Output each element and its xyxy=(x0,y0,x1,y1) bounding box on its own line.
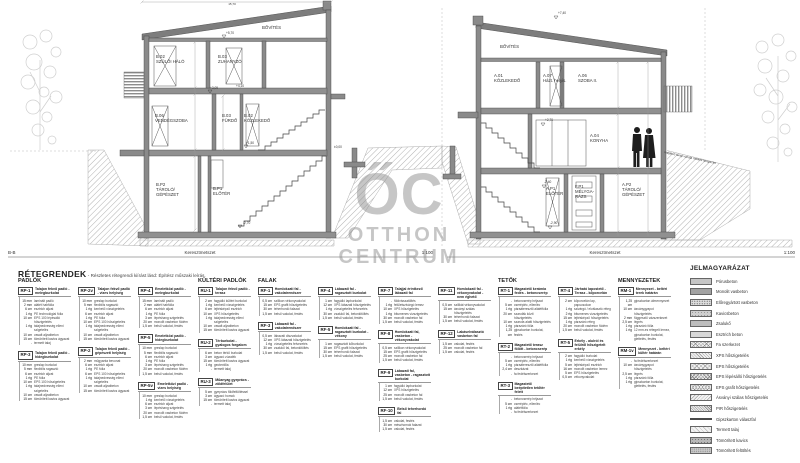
layer-thickness: 1,5 cm xyxy=(382,358,394,362)
layer-code-chip: RM-1v xyxy=(618,347,636,355)
material-swatch xyxy=(690,447,712,454)
layer-material: belső vakolat, festés xyxy=(454,319,491,323)
partition-wall xyxy=(600,174,604,232)
layer-row: 1,5 cmbelső vakolat, festés xyxy=(142,324,191,328)
room-name: Házt. helyis. xyxy=(543,78,566,83)
exterior-stair xyxy=(124,72,144,98)
slab xyxy=(149,150,327,156)
layer-row: 1,5 cmbelső vakolat, festés xyxy=(382,358,431,362)
legend-item-label: Fa szerkezet xyxy=(716,342,740,347)
layer-rows: 15 mmlaminált padló2 mmalátét habfólia6 … xyxy=(19,297,71,345)
caption-left: B-B Keresztmetszet 1:100 xyxy=(8,250,433,257)
layer-group-columns: RF-1Homlokzati fal - vakolatrendszer0,5 … xyxy=(258,287,491,438)
layer-thickness: 1 rtg xyxy=(22,324,34,332)
room-name: KÖZLEKEDŐ xyxy=(244,118,271,123)
layer-spec-block-header: RP-5vEmeletközi padló - vizes helyiség xyxy=(138,382,191,392)
layer-spec-block: RF-4Lábazati fal - ragasztott burkolat1 … xyxy=(318,287,371,320)
layer-block-title: Emeletközi padló - hidegburkolat xyxy=(155,334,191,342)
layer-rows: 1,5 cmvakolat, festés25 cmmonolit vasbet… xyxy=(439,340,491,354)
layer-code-chip: RP-5 xyxy=(138,334,153,342)
layer-rows: 1 cmfagyálló lapburkolat12 cmXPS lábazat… xyxy=(319,297,371,320)
layer-rows: 1 cmragasztott kőburkolat15 cmEPS grafit… xyxy=(319,340,371,358)
layer-group-heading: MENNYEZETEK xyxy=(618,278,660,284)
layer-thickness: 1,5 cm xyxy=(142,324,154,328)
elevation-label: ±0,00 xyxy=(334,145,342,149)
slab xyxy=(149,38,327,42)
layer-spec-block: RM-1Mennyezet - beltéri terek határán1,2… xyxy=(618,287,671,341)
layer-rows: 2 cmfagyálló burkolat1 rtgkenhető vízszi… xyxy=(559,353,611,380)
layer-material: fa fedélszerkezet xyxy=(514,372,551,376)
layer-spec-block-header: RM-1vMennyezet - beltéri kültér határán xyxy=(618,347,671,357)
layer-thickness: 1 rtg xyxy=(82,324,94,332)
layer-spec-block-header: RF-10Belső teherhordó fal xyxy=(378,407,431,417)
layer-row: -fa fedélszerkezet xyxy=(502,410,551,414)
layer-rows: 0,5 cmszilikon vékonyvakolat15 cmEPS gra… xyxy=(379,344,431,362)
material-swatch xyxy=(690,299,712,306)
material-swatch xyxy=(690,352,712,359)
layer-row: -termett talaj xyxy=(202,367,251,371)
layer-row: 1,5 cmbelső vakolat, festés xyxy=(322,316,371,320)
layer-rows: 1,5 cmvakolat, festés30 cmmészhomok fala… xyxy=(379,417,431,431)
room-name: RÁZS xyxy=(575,194,587,199)
elevation-label: +3,09 xyxy=(210,86,218,90)
layer-thickness: 10 cm xyxy=(622,307,634,315)
layer-row: 1,5 cmvakolat, festés xyxy=(382,427,431,431)
slab xyxy=(481,108,661,114)
layer-spec-column: RF-11Homlokzati fal - vékonyvakolat - ne… xyxy=(438,287,491,438)
layer-row: 1 rtgtalajnedvesség elleni szigetelés xyxy=(22,384,71,392)
material-swatch xyxy=(690,426,712,433)
layer-code-chip: RP-4 xyxy=(138,287,153,295)
legend-item-label: Ásványi szálas hőszigetelés xyxy=(716,395,768,400)
layer-spec-block-header: RP-3Talajon fekvő padló - hidegburkolat xyxy=(18,351,71,361)
slab xyxy=(149,88,327,94)
layer-material: termett talaj xyxy=(214,367,251,371)
layer-rows: 15 mmlaminált padló2 mmalátét habfólia6 … xyxy=(139,297,191,328)
layer-row: 15 cmásványi szálas hőszigetelés xyxy=(442,307,491,315)
layer-rows: 0,5 cmszilikon vékonyvakolat15 cmEPS gra… xyxy=(259,297,311,315)
layer-thickness: 1 rtg xyxy=(82,376,94,384)
layer-code-chip: RF-1 xyxy=(258,287,273,295)
partition-wall xyxy=(536,62,540,108)
layer-spec-column: RM-1Mennyezet - beltéri terek határán1,2… xyxy=(618,287,671,395)
layer-spec-block: RT-1Magastető kerámia fedés - betoncseré… xyxy=(498,287,551,337)
layer-spec-block: RF-7Talajjal érintkező lábazati fal-föld… xyxy=(378,287,431,324)
layer-spec-block-header: RF-8Homlokzati fal, vasbeton - vékonyvak… xyxy=(378,330,431,344)
layer-block-title: Talajon fekvő padló - melegburkolat xyxy=(35,287,71,295)
layer-thickness: 1,5 cm xyxy=(322,354,334,358)
layer-material: 12 mm-es rétegelt lemez, gipszkarton bur… xyxy=(634,328,671,341)
layer-block-title: Emeletközi padló - melegburkolat xyxy=(155,287,191,295)
layer-spec-block: RU-1Talajon fekvő padló - terasz2 cmfagy… xyxy=(198,287,251,333)
layer-row: 1 rtgtalajnedvesség elleni szigetelés xyxy=(22,324,71,332)
layer-spec-column: RP-1Talajon fekvő padló - melegburkolat1… xyxy=(18,287,71,425)
elevation-label: +2,70 xyxy=(545,118,553,122)
layer-spec-block-header: RP-4Emeletközi padló - melegburkolat xyxy=(138,287,191,297)
layer-spec-column: RP-4Emeletközi padló - melegburkolat15 m… xyxy=(138,287,191,425)
layer-material: ásványgyapot hőszigetelés xyxy=(634,363,671,371)
layer-material: kőporcelán lap, papucsokon xyxy=(574,299,611,307)
layer-thickness: - xyxy=(502,410,514,414)
layer-code-chip: RT-4 xyxy=(558,287,573,295)
layer-spec-block: RP-5Emeletközi padló - hidegburkolat10 m… xyxy=(138,334,191,375)
layer-rows: -fa fedélszerkezet10 cmásványgyapot hősz… xyxy=(619,358,671,389)
layer-block-title: Térburkolat - gyalogos forgalom xyxy=(215,339,251,347)
layer-rows: 0,5 cmszilikát vékonyvakolat15 cmásványi… xyxy=(439,301,491,324)
layer-block-title: Homlokzati fal - vékonyvakolat - nem égh… xyxy=(457,287,491,299)
layer-row: 1 rtgtalajnedvesség elleni szigetelés xyxy=(82,324,131,332)
layer-spec-block-header: RF-12Lakáselválasztó vasbeton fal xyxy=(438,330,491,340)
layer-material: ásványgyapot hőszigetelés xyxy=(634,307,671,315)
layer-spec-block-header: RM-1Mennyezet - beltéri terek határán xyxy=(618,287,671,297)
layer-spec-block: RT-2Magastető terasz fölött - betoncseré… xyxy=(498,343,551,376)
layer-row: 1 rtgtalajnedvesség elleni szigetelés xyxy=(82,376,131,384)
elevation-label: +5,70 xyxy=(226,31,234,35)
material-swatch xyxy=(690,310,712,317)
partition-wall xyxy=(262,41,266,88)
layer-spec-block: RT-4Járható lapostető - Terasz - kőporce… xyxy=(558,287,611,333)
legend-items: PórusbetonMonolit vasbetonElőregyártott … xyxy=(690,276,798,456)
extension-label: BŐVÍTÉS xyxy=(262,25,281,30)
layer-thickness: - xyxy=(22,341,34,345)
layer-row: 1,5 cmbelső vakolat, festés xyxy=(142,415,191,419)
layer-row: 1,5 cmbelső vakolat, festés xyxy=(142,372,191,376)
legend-item-label: Monolit vasbeton xyxy=(716,289,748,294)
left-section-drawing: 15,70 BŐVÍTÉS B.02 SZÜLŐI HÁLÓ B.03 ZUHA… xyxy=(120,1,365,239)
layer-row: 20 cmszarufák közti hőszigetelés xyxy=(502,312,551,320)
elevation-label: -2,70 xyxy=(243,221,250,225)
legend-item: EPS grafit hőszigetelés xyxy=(690,382,798,393)
layer-material: talajnedvesség elleni szigetelés xyxy=(34,324,71,332)
room-name: SZOBA II. xyxy=(578,78,597,83)
layer-rows: 6 cmbeton térkő burkolat3 cmágyazó zúzal… xyxy=(199,349,251,372)
layer-row: -fa fedélszerkezet xyxy=(502,372,551,376)
top-dimension: 15,70 xyxy=(228,2,236,6)
layer-material: gipszkarton burkolat, glettelés, festés xyxy=(634,380,671,388)
legend-item: Zsalukő xyxy=(690,318,798,329)
layer-rows: -betoncserép héjazat5 cmcserépléc, ellen… xyxy=(499,353,551,376)
slab xyxy=(481,58,661,62)
layer-spec-block: RP-3Talajon fekvő padló - hidegburkolat1… xyxy=(18,351,71,401)
layer-spec-block: RT-3Magastető beépítetlen tetőtér felett… xyxy=(498,382,551,414)
layer-spec-block-header: RT-1Magastető kerámia fedés - betoncseré… xyxy=(498,287,551,297)
tree-sketch-right xyxy=(754,34,797,162)
layer-material: ásványi szálas hőszigetelés xyxy=(454,307,491,315)
legend-item-label: XPS hőszigetelés xyxy=(716,353,749,358)
layer-thickness: 1 rtg xyxy=(202,316,214,324)
caption-right: Keresztmetszet 1:100 xyxy=(447,250,795,257)
partition-wall xyxy=(206,41,210,88)
layer-thickness: 1,5 cm xyxy=(322,316,334,320)
layer-row: 10 cmásványgyapot hőszigetelés xyxy=(622,307,671,315)
layer-thickness: - xyxy=(202,402,214,406)
layer-spec-block-header: RF-3Lábazati fal - vakolatrendszer xyxy=(258,322,311,332)
layer-spec-block-header: RF-4Lábazati fal - ragasztott burkolat xyxy=(318,287,371,297)
partition-wall xyxy=(212,94,216,150)
layer-spec-group: MENNYEZETEKRM-1Mennyezet - beltéri terek… xyxy=(618,287,671,438)
layer-block-title: Lábazati fal, vasbeton - ragasztott burk… xyxy=(395,369,431,381)
layer-row: 1,5 cmbelső vakolat, festés xyxy=(382,397,431,401)
layer-group-columns: RM-1Mennyezet - beltéri terek határán1,2… xyxy=(618,287,671,395)
room-name: ELŐTÉR xyxy=(546,191,563,196)
layer-spec-block: RF-12Lakáselválasztó vasbeton fal1,5 cmv… xyxy=(438,330,491,355)
layer-spec-block: RF-3Lábazati fal - vakolatrendszer0,5 cm… xyxy=(258,322,311,355)
layer-block-title: Magastető kerámia fedés - betoncserép xyxy=(515,287,551,295)
layer-block-title: Homlokzati fal - vakolatrendszer xyxy=(275,287,311,295)
layer-block-title: Emeletközi padló - vizes helyiség xyxy=(157,382,191,390)
layer-row: 1 rtg12 mm-es rétegelt lemez, gipszkarto… xyxy=(622,328,671,341)
material-swatch xyxy=(690,405,712,412)
layer-row: 1,5 cmbelső vakolat, festés xyxy=(382,320,431,324)
layer-code-chip: RF-10 xyxy=(378,407,395,415)
exterior-stair xyxy=(664,86,692,112)
layer-rows: -betoncserép héjazat5 cmcserépléc, ellen… xyxy=(499,297,551,336)
layer-spec-block: RF-10Belső teherhordó fal1,5 cmvakolat, … xyxy=(378,407,431,432)
layer-group-heading: TETŐK xyxy=(498,278,517,284)
layer-group-heading: PADLÓK xyxy=(18,278,41,284)
layer-row: 1,5 cmvakolat, festés xyxy=(442,350,491,354)
layer-spec-column: RU-1Talajon fekvő padló - terasz2 cmfagy… xyxy=(198,287,251,412)
layer-material: talajnedvesség elleni szigetelés xyxy=(34,384,71,392)
layer-spec-block-header: RP-2Talajon fekvő padló - gépészeti hely… xyxy=(78,347,131,357)
partition-wall xyxy=(564,174,568,232)
layer-spec-block-header: RF-1Homlokzati fal - vakolatrendszer xyxy=(258,287,311,297)
layer-row: 1,25 cmgipszkarton álmennyezet xyxy=(622,299,671,307)
layer-block-title: Mennyezet - beltéri kültér határán xyxy=(638,347,671,355)
layer-spec-column: RF-7Talajjal érintkező lábazati fal-föld… xyxy=(378,287,431,438)
material-swatch xyxy=(690,278,712,285)
layer-row: 1,25 cmgipszkarton burkolat, festés xyxy=(502,328,551,336)
legend-item-label: PIR hőszigetelés xyxy=(716,406,747,411)
layer-material: belső vakolat, festés xyxy=(334,316,371,320)
layer-spec-header: RÉTEGRENDEK - Részletes rétegrendi kiírá… xyxy=(18,264,206,282)
layer-thickness: 1,5 cm xyxy=(142,372,154,376)
layer-spec-group: TETŐKRT-1Magastető kerámia fedés - beton… xyxy=(498,287,611,438)
layer-spec-block: RP-4Emeletközi padló - melegburkolat15 m… xyxy=(138,287,191,328)
layer-material: belső vakolat, festés xyxy=(154,415,191,419)
partition-wall xyxy=(198,156,201,232)
layer-thickness: 1,5 cm xyxy=(442,319,454,323)
layer-code-chip: RP-5v xyxy=(138,382,155,390)
layer-spec-group: KÜLTÉRI PADLÓKRU-1Talajon fekvő padló - … xyxy=(198,287,251,438)
layer-block-title: Homlokzati fal, vasbeton - vékonyvakolat xyxy=(395,330,431,342)
elevation-label: +7,40 xyxy=(558,11,566,15)
layer-spec-block: RP-2Talajon fekvő padló - gépészeti hely… xyxy=(78,347,131,393)
layer-code-chip: RU-3 xyxy=(198,378,213,386)
material-swatch xyxy=(690,320,712,327)
wall xyxy=(476,26,481,239)
layer-material: tömörített kavics ágyazat xyxy=(94,389,131,393)
room-name: GÉPÉSZET xyxy=(156,192,179,197)
layer-block-title: Talajon fekvő padló - hidegburkolat xyxy=(35,351,71,359)
layer-thickness: 2 cm xyxy=(562,299,574,307)
layer-spec-block: RF-9Lábazati fal, vasbeton - ragasztott … xyxy=(378,369,431,401)
legend-item: Tömörített kavics xyxy=(690,435,798,446)
layer-block-title: Lakáselválasztó vasbeton fal xyxy=(457,330,491,338)
layer-spec-block-header: RU-3Műanyag gyeprács - zöldfelület xyxy=(198,378,251,388)
layer-material: talajnedvesség elleni szigetelés xyxy=(214,316,251,324)
material-swatch xyxy=(690,331,712,338)
layer-block-title: Magastető terasz fölött - betoncserép xyxy=(515,343,551,351)
extension-label: BŐVÍTÉS xyxy=(500,44,519,49)
legend-item: Ásványi szálas hőszigetelés xyxy=(690,393,798,404)
layer-thickness: 1,5 cm xyxy=(262,312,274,316)
layer-rows: 5 cmgyeprács földfeltöltéssel3 cmágyazó … xyxy=(199,388,251,406)
layer-rows: 10 mmgreslap burkolat1 rtgkenhető vízszi… xyxy=(139,392,191,419)
layer-row: 1 rtggipszkarton burkolat, glettelés, fe… xyxy=(622,380,671,388)
layer-spec-block-header: RT-5Erkély - alulról és felülről hőszige… xyxy=(558,339,611,353)
legend-item-label: Pórusbeton xyxy=(716,279,737,284)
legend-item-label: Tömörített kavics xyxy=(716,438,748,443)
slab xyxy=(481,168,661,174)
caption-scale: 1:100 xyxy=(422,250,434,255)
layer-group-columns: RU-1Talajon fekvő padló - terasz2 cmfagy… xyxy=(198,287,251,412)
layer-code-chip: RT-2 xyxy=(498,343,513,351)
layer-row: -termett talaj xyxy=(22,341,71,345)
layer-material: vakolat, festés xyxy=(454,350,491,354)
legend-item: Kavicsbeton xyxy=(690,308,798,319)
room-name: VENDÉGSZOBA xyxy=(155,118,188,123)
layer-code-chip: RT-1 xyxy=(498,287,513,295)
legend-item-label: Zsalukő xyxy=(716,321,731,326)
room-name: ZUHANYZÓ xyxy=(218,59,242,64)
legend-item: Pórusbeton xyxy=(690,276,798,287)
layer-spec-block: RF-8Homlokzati fal, vasbeton - vékonyvak… xyxy=(378,330,431,362)
layer-thickness: 15 cm xyxy=(22,397,34,401)
layer-spec-block-header: RT-2Magastető terasz fölött - betoncseré… xyxy=(498,343,551,353)
layer-spec-block-header: RF-5Homlokzati fal - ragasztott burkolat… xyxy=(318,326,371,340)
room-name: SZÜLŐI HÁLÓ xyxy=(156,59,185,64)
layer-block-title: Műanyag gyeprács - zöldfelület xyxy=(215,378,251,386)
wall xyxy=(326,10,331,238)
layer-spec-group: FALAKRF-1Homlokzati fal - vakolatrendsze… xyxy=(258,287,491,438)
layer-spec-groups: PADLÓKRP-1Talajon fekvő padló - melegbur… xyxy=(18,287,671,438)
layer-spec-block: RU-2Térburkolat - gyalogos forgalom6 cmb… xyxy=(198,339,251,372)
layer-material: EPS 100 lépésálló hőszigetelés xyxy=(34,316,71,324)
layer-spec-block: RF-1Homlokzati fal - vakolatrendszer0,5 … xyxy=(258,287,311,316)
layer-thickness: 1 rtg xyxy=(22,384,34,392)
layer-code-chip: RF-4 xyxy=(318,287,333,295)
room-name: FÜRDŐ xyxy=(222,118,238,123)
layer-spec-block: RF-11Homlokzati fal - vékonyvakolat - ne… xyxy=(438,287,491,324)
legend-item: EPS lépésálló hőszigetelés xyxy=(690,371,798,382)
layer-material: gipszkarton álmennyezet xyxy=(634,299,671,307)
layer-thickness: 10 cm xyxy=(622,363,634,371)
caption-title: Keresztmetszet xyxy=(589,250,621,255)
layer-spec-column: RF-1Homlokzati fal - vakolatrendszer0,5 … xyxy=(258,287,311,438)
layer-material: belső vakolat, festés xyxy=(394,397,431,401)
layer-spec-block: RP-1Talajon fekvő padló - melegburkolat1… xyxy=(18,287,71,345)
layer-material: talajnedvesség elleni szigetelés xyxy=(94,324,131,332)
layer-material: belső vakolat, festés xyxy=(274,312,311,316)
legend-item: Tömörített feltöltés xyxy=(690,446,798,457)
layer-group-columns: RP-1Talajon fekvő padló - melegburkolat1… xyxy=(18,287,191,425)
material-swatch xyxy=(690,384,712,391)
layer-spec-column: RF-4Lábazati fal - ragasztott burkolat1 … xyxy=(318,287,371,438)
layer-row: 1,5 cmbelső vakolat, festés xyxy=(262,312,311,316)
layer-code-chip: RT-5 xyxy=(558,339,573,347)
legend-item-label: Tömörített feltöltés xyxy=(716,448,751,453)
room-name: GÉPÉSZET xyxy=(622,192,645,197)
layer-code-chip: RU-2 xyxy=(198,339,213,347)
layer-spec-block: RM-1vMennyezet - beltéri kültér határán-… xyxy=(618,347,671,388)
layer-row: 0,5 cmvékonyvakolat xyxy=(562,375,611,379)
layer-thickness: 15 cm xyxy=(442,307,454,315)
legend-item: Monolit vasbeton xyxy=(690,287,798,298)
legend-title: JELMAGYARÁZAT xyxy=(690,265,798,272)
legend-item: PIR hőszigetelés xyxy=(690,403,798,414)
layer-spec-block: RT-5Erkély - alulról és felülről hőszige… xyxy=(558,339,611,380)
layer-material: belső vakolat, festés xyxy=(274,351,311,355)
layer-spec-block-header: RT-4Járható lapostető - Terasz - kőporce… xyxy=(558,287,611,297)
legend-item-label: Előregyártott vasbeton xyxy=(716,300,758,305)
section-mark: B-B xyxy=(8,250,16,255)
layer-row: 2 cmkőporcelán lap, papucsokon xyxy=(562,299,611,307)
layer-code-chip: RM-1 xyxy=(618,287,634,295)
layer-block-title: Lábazati fal - ragasztott burkolat xyxy=(335,287,371,295)
layer-thickness: 1,5 cm xyxy=(382,320,394,324)
material-swatch xyxy=(690,437,712,444)
layer-material: belső vakolat, festés xyxy=(574,328,611,332)
material-swatch xyxy=(690,373,712,380)
layer-material: belső vakolat, festés xyxy=(394,358,431,362)
layer-block-title: Magastető beépítetlen tetőtér felett xyxy=(515,382,551,394)
partition-wall xyxy=(240,94,243,150)
layer-code-chip: RF-7 xyxy=(378,287,393,295)
layer-code-chip: RF-9 xyxy=(378,369,393,377)
layer-block-title: Talajon fekvő padló - gépészeti helyiség xyxy=(95,347,131,355)
layer-row: 15 cmtömörített kavics ágyazat xyxy=(82,389,131,393)
legend-item: Gipszkarton válaszfal xyxy=(690,414,798,425)
caption-scale: 1:100 xyxy=(784,250,796,255)
layer-rows: -betoncserép héjazat5 cmcserépléc, ellen… xyxy=(499,396,551,414)
partition-wall xyxy=(528,114,532,168)
room-name: KONYHA xyxy=(590,138,608,143)
legend-item-label: Gipszkarton válaszfal xyxy=(716,417,756,422)
layer-thickness: 1,5 cm xyxy=(382,397,394,401)
legend-item-label: EPS grafit hőszigetelés xyxy=(716,385,759,390)
layer-row: 1 rtgtalajnedvesség elleni szigetelés xyxy=(202,316,251,324)
layer-row: 1,5 cmbelső vakolat, festés xyxy=(322,354,371,358)
layer-spec-column: RP-2vTalajon fekvő padló - vizes helyisé… xyxy=(78,287,131,425)
layer-material: termett talaj xyxy=(34,341,71,345)
legend-item: Esztrich beton xyxy=(690,329,798,340)
layer-code-chip: RP-2 xyxy=(78,347,93,355)
layer-spec-block-header: RU-1Talajon fekvő padló - terasz xyxy=(198,287,251,297)
layer-spec-block-header: RF-9Lábazati fal, vasbeton - ragasztott … xyxy=(378,369,431,383)
layer-code-chip: RP-3 xyxy=(18,351,33,359)
layer-thickness: 15 cm xyxy=(82,337,94,341)
layer-spec-block-header: RU-2Térburkolat - gyalogos forgalom xyxy=(198,339,251,349)
layer-thickness: 0,5 cm xyxy=(562,375,574,379)
legend-item-label: Termett talaj xyxy=(716,427,739,432)
layer-block-title: Homlokzati fal - ragasztott burkolat - v… xyxy=(335,326,371,338)
layer-spec-block-header: RP-5Emeletközi padló - hidegburkolat xyxy=(138,334,191,344)
layer-thickness: 1,5 cm xyxy=(442,350,454,354)
layer-spec-block-header: RP-2vTalajon fekvő padló - vizes helyisé… xyxy=(78,287,131,297)
layer-thickness: 1,25 cm xyxy=(622,299,634,307)
layer-spec-column: RT-4Járható lapostető - Terasz - kőporce… xyxy=(558,287,611,420)
layer-material: szarufák közti hőszigetelés xyxy=(514,312,551,320)
legend-item-label: EPS lépésálló hőszigetelés xyxy=(716,374,767,379)
layer-thickness: 15 cm xyxy=(82,389,94,393)
layer-material: belső vakolat, festés xyxy=(334,354,371,358)
layer-group-columns: RT-1Magastető kerámia fedés - betoncseré… xyxy=(498,287,611,420)
layer-row: 10 cmEPS 100 lépésálló hőszigetelés xyxy=(22,316,71,324)
layer-rows: 0,5 cmlábazati díszvakolat12 cmXPS lábaz… xyxy=(259,332,311,355)
layer-code-chip: RF-11 xyxy=(438,287,455,295)
layer-thickness: 15 cm xyxy=(202,328,214,332)
